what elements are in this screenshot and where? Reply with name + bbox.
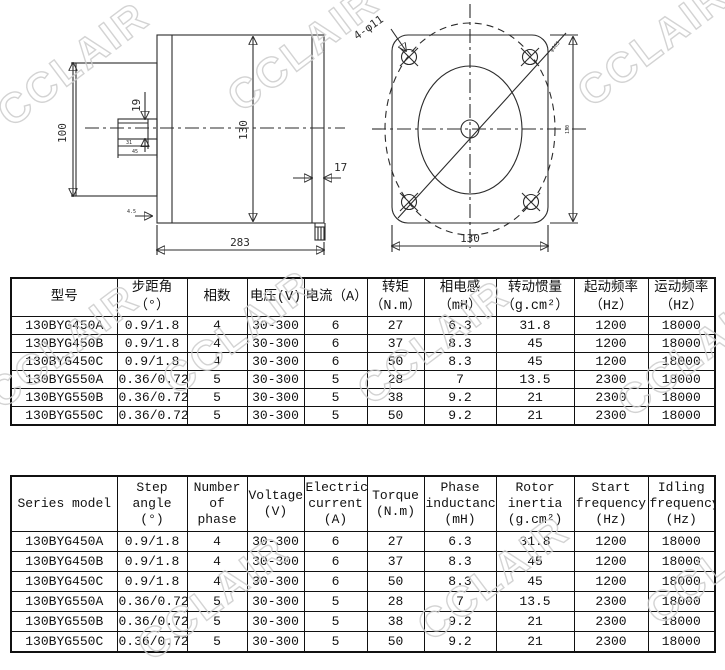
terminal-connector xyxy=(315,223,325,240)
cell: 5 xyxy=(187,389,247,407)
cell: 30-300 xyxy=(247,407,304,426)
cell: 6 xyxy=(304,552,367,572)
cell: 130BYG550B xyxy=(11,612,117,632)
svg-text:130: 130 xyxy=(460,232,480,245)
technical-drawing: 100 19 31 45 130 17 xyxy=(0,0,725,272)
col-step-angle: Step angle (°) xyxy=(117,476,187,532)
holes-callout: 4-φ11 xyxy=(351,13,406,51)
cell: 130BYG550A xyxy=(11,592,117,612)
svg-text:100: 100 xyxy=(56,123,69,143)
cell: 18000 xyxy=(648,572,715,592)
cell: 21 xyxy=(496,632,574,653)
cell: 5 xyxy=(304,389,367,407)
cell: 130BYG450C xyxy=(11,353,117,371)
cell: 2300 xyxy=(574,407,648,426)
cell: 4 xyxy=(187,353,247,371)
cell: 50 xyxy=(367,632,424,653)
cell: 37 xyxy=(367,335,424,353)
cell: 1200 xyxy=(574,335,648,353)
svg-text:130: 130 xyxy=(237,120,250,140)
bolt-circle-label: φ165 xyxy=(549,40,562,53)
bolt-circle-diagonal xyxy=(398,33,566,218)
cell: 2300 xyxy=(574,592,648,612)
cell: 4 xyxy=(187,552,247,572)
motor-front-view: φ165 4-φ11 130 130 xyxy=(351,4,588,252)
col-torque: 转矩 （N.m） xyxy=(367,278,424,317)
cell: 5 xyxy=(304,612,367,632)
header-row: Series model Step angle (°) Number of ph… xyxy=(11,476,715,532)
header-row: 型号 步距角 （°） 相数 电压(V) 电流（A） 转矩 （N.m） 相电感 （… xyxy=(11,278,715,317)
col-current: 电流（A） xyxy=(304,278,367,317)
motor-side-view: 100 19 31 45 130 17 xyxy=(56,35,347,255)
cell: 27 xyxy=(367,532,424,552)
cell: 1200 xyxy=(574,572,648,592)
cell: 0.36/0.72 xyxy=(117,371,187,389)
spec-table-english: Series model Step angle (°) Number of ph… xyxy=(10,475,716,653)
dim-total-length: 283 xyxy=(157,225,324,255)
cell: 5 xyxy=(304,632,367,653)
svg-text:4-φ11: 4-φ11 xyxy=(351,13,386,43)
cell: 0.9/1.8 xyxy=(117,552,187,572)
cell: 0.36/0.72 xyxy=(117,612,187,632)
cell: 30-300 xyxy=(247,572,304,592)
spec-row-130BYG550C: 130BYG550C0.36/0.72530-3005509.221230018… xyxy=(11,407,715,426)
cell: 13.5 xyxy=(496,371,574,389)
cell: 6 xyxy=(304,572,367,592)
svg-text:130: 130 xyxy=(565,125,571,134)
spec-row-130BYG450A: 130BYG450A0.9/1.8430-3006276.331.8120018… xyxy=(11,317,715,335)
dim-endcap-width: 17 xyxy=(293,161,347,178)
spec-row-130BYG450C: 130BYG450C0.9/1.8430-3006508.34512001800… xyxy=(11,353,715,371)
cell: 7 xyxy=(424,592,496,612)
cell: 18000 xyxy=(648,407,715,426)
cell: 28 xyxy=(367,371,424,389)
cell: 31.8 xyxy=(496,317,574,335)
shaft-outline xyxy=(118,119,157,139)
rear-housing-outline xyxy=(76,63,157,196)
cell: 130BYG550B xyxy=(11,389,117,407)
cell: 38 xyxy=(367,612,424,632)
cell: 28 xyxy=(367,592,424,612)
cell: 6.3 xyxy=(424,317,496,335)
svg-text:283: 283 xyxy=(230,236,250,249)
col-step-angle: 步距角 （°） xyxy=(117,278,187,317)
spec-row-130BYG450B: 130BYG450B0.9/1.8430-3006378.34512001800… xyxy=(11,552,715,572)
cell: 4 xyxy=(187,532,247,552)
cell: 1200 xyxy=(574,317,648,335)
cell: 5 xyxy=(187,371,247,389)
col-start-frequency: 起动频率 （Hz） xyxy=(574,278,648,317)
cell: 30-300 xyxy=(247,335,304,353)
spec-row-130BYG550C: 130BYG550C0.36/0.72530-3005509.221230018… xyxy=(11,632,715,653)
col-electric-current: Electric current (A) xyxy=(304,476,367,532)
cell: 4 xyxy=(187,335,247,353)
cell: 5 xyxy=(187,592,247,612)
col-phase-inductance: Phase inductance (mH) xyxy=(424,476,496,532)
cell: 2300 xyxy=(574,612,648,632)
cell: 0.36/0.72 xyxy=(117,389,187,407)
cell: 1200 xyxy=(574,353,648,371)
cell: 6 xyxy=(304,353,367,371)
cell: 18000 xyxy=(648,353,715,371)
cell: 0.9/1.8 xyxy=(117,532,187,552)
cell: 5 xyxy=(304,592,367,612)
cell: 9.2 xyxy=(424,612,496,632)
col-phases: 相数 xyxy=(187,278,247,317)
col-inertia: 转动惯量 （g.cm²） xyxy=(496,278,574,317)
cell: 1200 xyxy=(574,532,648,552)
cell: 9.2 xyxy=(424,407,496,426)
cell: 30-300 xyxy=(247,389,304,407)
col-torque: Torque (N.m) xyxy=(367,476,424,532)
cell: 7 xyxy=(424,371,496,389)
cell: 130BYG450B xyxy=(11,552,117,572)
cell: 9.2 xyxy=(424,632,496,653)
svg-text:19: 19 xyxy=(130,99,143,112)
cell: 0.9/1.8 xyxy=(117,317,187,335)
cell: 50 xyxy=(367,407,424,426)
col-voltage: 电压(V) xyxy=(247,278,304,317)
cell: 0.9/1.8 xyxy=(117,572,187,592)
svg-text:4.5: 4.5 xyxy=(127,209,136,215)
col-number-of-phase: Number of phase xyxy=(187,476,247,532)
cell: 130BYG450A xyxy=(11,532,117,552)
cell: 0.36/0.72 xyxy=(117,407,187,426)
cell: 30-300 xyxy=(247,371,304,389)
cell: 18000 xyxy=(648,612,715,632)
cell: 30-300 xyxy=(247,353,304,371)
cell: 130BYG550C xyxy=(11,632,117,653)
cell: 1200 xyxy=(574,552,648,572)
col-rotor-inertia: Rotor inertia (g.cm²) xyxy=(496,476,574,532)
cell: 45 xyxy=(496,335,574,353)
col-inductance: 相电感 （mH） xyxy=(424,278,496,317)
cell: 130BYG450B xyxy=(11,335,117,353)
svg-text:45: 45 xyxy=(132,149,138,155)
cell: 8.3 xyxy=(424,552,496,572)
cell: 130BYG550A xyxy=(11,371,117,389)
cell: 9.2 xyxy=(424,389,496,407)
cell: 5 xyxy=(187,407,247,426)
cell: 4 xyxy=(187,317,247,335)
cell: 6 xyxy=(304,532,367,552)
cell: 30-300 xyxy=(247,552,304,572)
motor-datasheet-page: { "watermark": { "text": "CCLAIR", "colo… xyxy=(0,0,725,640)
dim-shaft-diameter: 19 xyxy=(130,92,145,152)
cell: 130BYG450A xyxy=(11,317,117,335)
cell: 45 xyxy=(496,552,574,572)
spec-row-130BYG550B: 130BYG550B0.36/0.72530-3005389.221230018… xyxy=(11,389,715,407)
cell: 30-300 xyxy=(247,317,304,335)
cell: 18000 xyxy=(648,632,715,653)
cell: 18000 xyxy=(648,552,715,572)
cell: 8.3 xyxy=(424,353,496,371)
col-idling-frequency: 运动频率 （Hz） xyxy=(648,278,715,317)
cell: 5 xyxy=(187,632,247,653)
cell: 130BYG450C xyxy=(11,572,117,592)
cell: 4 xyxy=(187,572,247,592)
spec-row-130BYG550A: 130BYG550A0.36/0.72530-300528713.5230018… xyxy=(11,371,715,389)
cell: 0.36/0.72 xyxy=(117,632,187,653)
col-voltage: Voltage (V) xyxy=(247,476,304,532)
cell: 21 xyxy=(496,407,574,426)
cell: 130BYG550C xyxy=(11,407,117,426)
spec-table-chinese: 型号 步距角 （°） 相数 电压(V) 电流（A） 转矩 （N.m） 相电感 （… xyxy=(10,277,716,426)
cell: 21 xyxy=(496,612,574,632)
cell: 8.3 xyxy=(424,572,496,592)
col-model: 型号 xyxy=(11,278,117,317)
spec-row-130BYG450A: 130BYG450A0.9/1.8430-3006276.331.8120018… xyxy=(11,532,715,552)
cell: 38 xyxy=(367,389,424,407)
cell: 6 xyxy=(304,317,367,335)
dim-step: 4.5 xyxy=(127,209,152,216)
cell: 5 xyxy=(304,371,367,389)
cell: 18000 xyxy=(648,592,715,612)
spec-row-130BYG550A: 130BYG550A0.36/0.72530-300528713.5230018… xyxy=(11,592,715,612)
cell: 6 xyxy=(304,335,367,353)
cell: 45 xyxy=(496,572,574,592)
cell: 2300 xyxy=(574,389,648,407)
cell: 50 xyxy=(367,353,424,371)
spec-row-130BYG450C: 130BYG450C0.9/1.8430-3006508.34512001800… xyxy=(11,572,715,592)
cell: 18000 xyxy=(648,389,715,407)
cell: 18000 xyxy=(648,335,715,353)
spec-row-130BYG550B: 130BYG550B0.36/0.72530-3005389.221230018… xyxy=(11,612,715,632)
cell: 21 xyxy=(496,389,574,407)
col-start-frequency: Start frequency (Hz) xyxy=(574,476,648,532)
dim-rear-height: 100 xyxy=(56,63,76,196)
cell: 30-300 xyxy=(247,592,304,612)
cell: 37 xyxy=(367,552,424,572)
cell: 0.9/1.8 xyxy=(117,353,187,371)
spec-row-130BYG450B: 130BYG450B0.9/1.8430-3006378.34512001800… xyxy=(11,335,715,353)
cell: 2300 xyxy=(574,632,648,653)
cell: 30-300 xyxy=(247,612,304,632)
col-idling-frequency: Idling frequency (Hz) xyxy=(648,476,715,532)
dim-key-length: 31 xyxy=(118,123,148,149)
cell: 50 xyxy=(367,572,424,592)
cell: 5 xyxy=(304,407,367,426)
svg-text:31: 31 xyxy=(126,140,132,146)
cell: 8.3 xyxy=(424,335,496,353)
svg-text:17: 17 xyxy=(334,161,347,174)
dim-shaft-length: 45 xyxy=(118,139,157,158)
cell: 30-300 xyxy=(247,632,304,653)
cell: 0.9/1.8 xyxy=(117,335,187,353)
cell: 6.3 xyxy=(424,532,496,552)
cell: 5 xyxy=(187,612,247,632)
cell: 0.36/0.72 xyxy=(117,592,187,612)
cell: 27 xyxy=(367,317,424,335)
dim-body-diameter: 130 xyxy=(237,37,253,221)
cell: 18000 xyxy=(648,371,715,389)
cell: 2300 xyxy=(574,371,648,389)
cell: 31.8 xyxy=(496,532,574,552)
cell: 13.5 xyxy=(496,592,574,612)
cell: 18000 xyxy=(648,317,715,335)
col-series-model: Series model xyxy=(11,476,117,532)
cell: 30-300 xyxy=(247,532,304,552)
cell: 18000 xyxy=(648,532,715,552)
cell: 45 xyxy=(496,353,574,371)
